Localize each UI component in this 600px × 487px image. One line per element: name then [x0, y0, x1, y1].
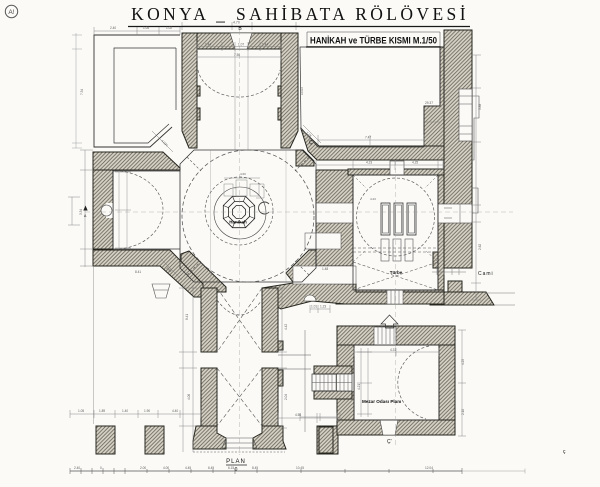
- svg-text:1.44: 1.44: [262, 43, 268, 47]
- svg-text:1.05: 1.05: [143, 26, 149, 30]
- svg-text:2.04: 2.04: [284, 394, 288, 400]
- svg-text:0: 0: [235, 467, 238, 473]
- svg-text:1.40: 1.40: [122, 409, 128, 413]
- svg-text:2.00: 2.00: [140, 466, 146, 470]
- svg-text:0: 0: [100, 466, 102, 470]
- svg-text:4.31: 4.31: [390, 348, 396, 352]
- svg-text:7.50: 7.50: [234, 53, 240, 57]
- svg-text:4.25: 4.25: [461, 359, 465, 365]
- svg-text:4.56: 4.56: [295, 413, 301, 417]
- svg-text:10.45: 10.45: [296, 466, 304, 470]
- svg-text:Hanikah: Hanikah: [229, 220, 247, 225]
- svg-text:2.10: 2.10: [461, 409, 465, 415]
- svg-text:1.89: 1.89: [99, 409, 105, 413]
- svg-text:4.25: 4.25: [412, 161, 418, 165]
- svg-text:1.44: 1.44: [205, 43, 211, 47]
- svg-text:4.21: 4.21: [357, 384, 361, 390]
- svg-text:Türbe: Türbe: [390, 270, 403, 275]
- svg-text:1.23: 1.23: [320, 305, 326, 309]
- svg-text:PLAN: PLAN: [226, 459, 246, 465]
- svg-text:Ç': Ç': [387, 439, 392, 445]
- svg-text:1.90: 1.90: [144, 409, 150, 413]
- svg-text:HANİKAH ve TÜRBE KISMI M.1/50: HANİKAH ve TÜRBE KISMI M.1/50: [310, 36, 437, 46]
- svg-text:4.23: 4.23: [370, 197, 376, 201]
- svg-text:4.06: 4.06: [187, 394, 191, 400]
- svg-text:19.05: 19.05: [300, 87, 304, 95]
- svg-text:4.45: 4.45: [185, 466, 191, 470]
- svg-text:12.04: 12.04: [425, 466, 433, 470]
- svg-text:2.62: 2.62: [478, 244, 482, 250]
- svg-text:4.40: 4.40: [172, 409, 178, 413]
- svg-text:Cami: Cami: [478, 271, 494, 277]
- svg-text:1.01: 1.01: [311, 305, 317, 309]
- svg-text:8.41: 8.41: [185, 314, 189, 320]
- svg-text:6.45: 6.45: [208, 466, 214, 470]
- svg-text:KONYA _ SAHİBATA RÖLÖVESİ: KONYA _ SAHİBATA RÖLÖVESİ: [131, 4, 469, 24]
- svg-text:4.23: 4.23: [366, 161, 372, 165]
- svg-text:2.40: 2.40: [74, 466, 80, 470]
- svg-text:3.34: 3.34: [79, 209, 83, 215]
- svg-text:7.47: 7.47: [365, 136, 371, 140]
- svg-text:2.40: 2.40: [110, 26, 116, 30]
- svg-text:6.15: 6.15: [228, 466, 234, 470]
- svg-text:Ç: Ç: [309, 140, 313, 146]
- svg-text:1.48: 1.48: [322, 267, 328, 271]
- svg-text:8.41: 8.41: [135, 270, 141, 274]
- svg-text:8.45: 8.45: [252, 466, 258, 470]
- svg-text:4.70: 4.70: [233, 21, 240, 25]
- svg-text:Mezar Odası Planı: Mezar Odası Planı: [362, 399, 401, 404]
- svg-text:4.42: 4.42: [284, 324, 288, 330]
- svg-text:4.60: 4.60: [240, 172, 246, 176]
- svg-text:1.05: 1.05: [78, 409, 84, 413]
- svg-text:29.37: 29.37: [425, 101, 433, 105]
- svg-text:1.02: 1.02: [166, 26, 172, 30]
- svg-text:7.34: 7.34: [80, 89, 84, 95]
- svg-text:4.00: 4.00: [163, 466, 169, 470]
- svg-text:A!: A!: [8, 9, 14, 16]
- svg-text:1.07: 1.07: [238, 43, 244, 47]
- svg-text:3.88: 3.88: [478, 104, 482, 110]
